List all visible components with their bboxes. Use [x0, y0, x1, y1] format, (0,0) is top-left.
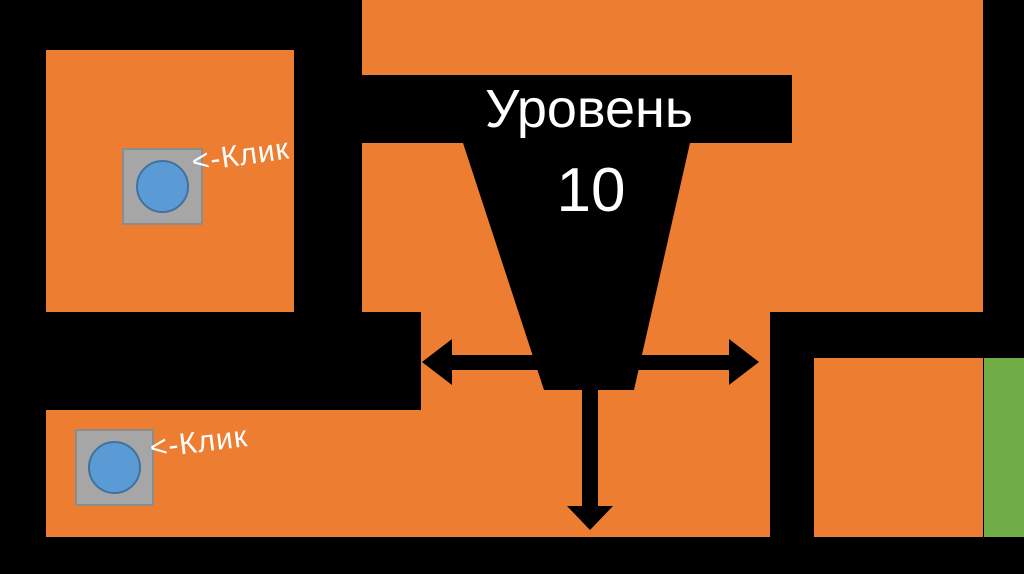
corridor-right-vertical	[770, 312, 814, 574]
game-stage: Уровень 10 <-Клик <-Клик	[0, 0, 1024, 574]
blue-circle-icon	[136, 160, 189, 213]
goal-strip[interactable]	[984, 358, 1024, 537]
wall-block-bottom-strip	[46, 410, 770, 537]
level-title-band: Уровень	[362, 75, 792, 143]
corridor-left	[0, 312, 421, 410]
click-button-2[interactable]	[75, 429, 154, 506]
level-title: Уровень	[461, 82, 693, 136]
blue-circle-icon	[88, 441, 141, 494]
level-number: 10	[511, 160, 671, 222]
